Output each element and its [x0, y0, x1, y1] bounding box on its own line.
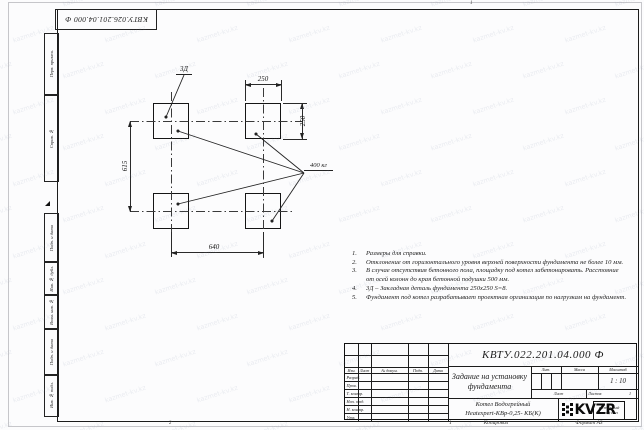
stamp-podp-data-2: Подп. и дата: [44, 328, 59, 376]
product-line-1: Котел Водогрейный: [476, 401, 531, 409]
note-number: 5.: [352, 294, 366, 303]
note-text: 3Д – Закладная деталь фундамента 250х250…: [366, 285, 628, 294]
stamp-label: Инв. № подл.: [49, 382, 54, 408]
stamp-label: Инв. № дубл.: [49, 266, 54, 292]
frame-center-mark: [45, 201, 50, 206]
mass-label: Масса: [561, 366, 598, 373]
note-item: 2.Отклонение от горизонтального уровня в…: [352, 259, 628, 268]
footer-copied-label: Копировал: [465, 420, 527, 426]
title-block: КВТУ.022.201.04.000 Ф Изм. Лист № докум.…: [344, 343, 637, 420]
stamp-label: Подп. и дата: [49, 339, 54, 365]
note-text: Отклонение от горизонтального уровня вер…: [366, 259, 628, 268]
logo-subtitle-line-2: ЗАВОД РЭП: [600, 411, 618, 415]
leader-lines: [100, 60, 340, 230]
zone-mark-bottom: 2: [169, 421, 172, 426]
row-razrab: Разраб.: [345, 373, 371, 381]
stamp-label: Взам. инв. №: [49, 299, 54, 325]
sheet-label: Лист: [531, 389, 586, 398]
lit-label: Лит.: [531, 366, 561, 373]
sheets-label: Листов: [586, 389, 622, 398]
footer-sheet-mark: 1: [449, 420, 452, 426]
row-prov: Пров.: [345, 381, 371, 389]
note-number: 1.: [352, 250, 366, 259]
dim-arrow: [171, 251, 177, 255]
product-line-2: Heatexpert-КВр-0,25- КБ(К): [465, 410, 540, 418]
note-item: 1.Размеры для справки.: [352, 250, 628, 259]
stamp-perv-primen: Перв. примен.: [44, 33, 59, 95]
dim-arrow: [258, 251, 264, 255]
stamp-label: Справ. №: [49, 129, 54, 148]
row-nach-otd: Нач. отд.: [345, 397, 371, 405]
stamp-label: Подп. и дата: [49, 225, 54, 251]
row-utv: Утв.: [345, 413, 371, 421]
scale-value: 1 : 10: [598, 373, 638, 389]
row-t-kontr: Т. контр.: [345, 389, 371, 397]
zone-mark-top: 1: [470, 1, 473, 6]
drawing-sheet: КВТУ.026.201.04.000 Ф Перв. примен. Спра…: [0, 0, 644, 430]
notes-list: 1.Размеры для справки. 2.Отклонение от г…: [352, 250, 628, 302]
stamp-podp-data-1: Подп. и дата: [44, 213, 59, 263]
note-number: 2.: [352, 259, 366, 268]
note-text: Размеры для справки.: [366, 250, 628, 259]
title-block-doc-number: КВТУ.022.201.04.000 Ф: [448, 344, 638, 366]
stamp-inv-podl: Инв. № подл.: [44, 374, 59, 417]
stamp-vzam-inv: Взам. инв. №: [44, 294, 59, 330]
col-podp: Подп.: [408, 367, 428, 373]
stamp-inv-dubl: Инв. № дубл.: [44, 261, 59, 296]
sheets-value: 1: [622, 389, 638, 398]
product-name: Котел Водогрейный Heatexpert-КВр-0,25- К…: [448, 398, 558, 421]
note-number: 3.: [352, 267, 366, 284]
scale-label: Масштаб: [598, 366, 638, 373]
title-block-title: Задание на установку фундамента: [448, 366, 531, 398]
note-text: Фундамент под котел разрабатывает проект…: [366, 294, 628, 303]
logo-subtitle-box: КОТЕЛЬНЫЙ ЗАВОД РЭП: [593, 401, 625, 420]
note-number: 4.: [352, 285, 366, 294]
top-document-number-stamp: КВТУ.026.201.04.000 Ф: [55, 9, 157, 30]
note-item: 3.В случае отсутствия бетонного пола, пл…: [352, 267, 628, 284]
stamp-sprav-no: Справ. №: [44, 95, 59, 182]
col-docum: № докум.: [371, 367, 408, 373]
note-item: 4.3Д – Закладная деталь фундамента 250х2…: [352, 285, 628, 294]
col-data: Дата: [428, 367, 448, 373]
kvzr-logo-icon: [562, 403, 573, 416]
dim-label-640: 640: [197, 243, 231, 251]
note-text: В случае отсутствия бетонного пола, площ…: [366, 267, 628, 284]
footer-format-label: Формат А3: [558, 420, 620, 426]
note-item: 5.Фундамент под котел разрабатывает прое…: [352, 294, 628, 303]
stamp-label: Перв. примен.: [49, 50, 54, 77]
dimension-line-640: [171, 252, 264, 253]
top-document-number: КВТУ.026.201.04.000 Ф: [65, 15, 148, 24]
row-n-kontr: Н. контр.: [345, 405, 371, 413]
